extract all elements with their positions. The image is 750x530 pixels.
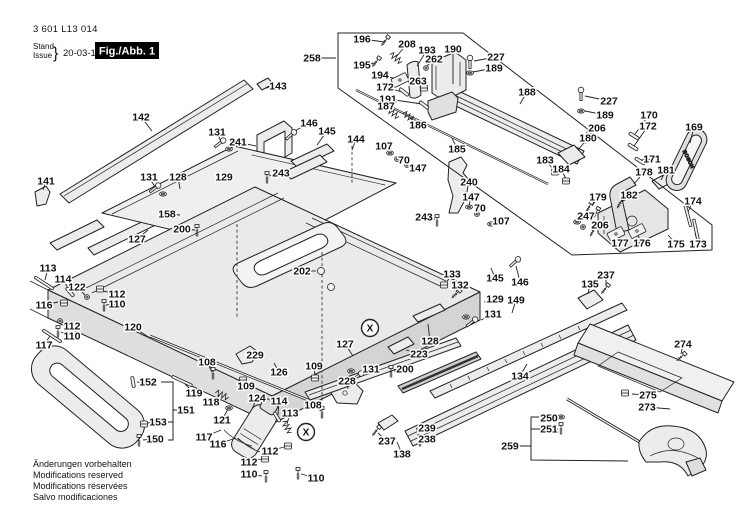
part-label-176: 176: [633, 238, 651, 250]
part-label-113: 113: [282, 408, 299, 420]
part-label-208: 208: [398, 39, 416, 51]
part-label-132: 132: [451, 280, 469, 292]
part-label-112: 112: [241, 457, 258, 469]
part-label-108: 108: [198, 357, 216, 369]
clip-141: [35, 186, 50, 206]
washer-icon: [467, 71, 474, 75]
part-label-262: 262: [425, 54, 443, 66]
part-label-194: 194: [371, 70, 389, 82]
part-label-143: 143: [269, 81, 287, 93]
part-label-180: 180: [579, 133, 597, 145]
part-label-110: 110: [241, 469, 258, 481]
spring-icon: [281, 419, 294, 434]
part-label-116: 116: [210, 439, 227, 451]
pin-icon: [628, 143, 639, 151]
part-label-145: 145: [318, 126, 336, 138]
issue-label: Issue: [33, 51, 53, 60]
part-label-70: 70: [398, 155, 410, 167]
part-label-274: 274: [674, 339, 692, 351]
part-label-151: 151: [177, 405, 195, 417]
part-label-114: 114: [271, 396, 288, 408]
part-label-273: 273: [638, 402, 656, 414]
part-label-109: 109: [305, 361, 323, 373]
part-label-131: 131: [140, 172, 158, 184]
carrier-191: [428, 92, 458, 120]
pin-icon: [131, 376, 136, 387]
part-label-169: 169: [685, 122, 703, 134]
figure-label: Fig./Abb. 1: [99, 46, 155, 58]
part-label-240: 240: [460, 177, 478, 189]
washer-icon: [558, 415, 565, 419]
screw-icon: [296, 468, 300, 481]
screw-icon: [195, 225, 199, 238]
bolt-icon: [508, 255, 522, 268]
clip-icon: [312, 375, 319, 381]
part-label-128: 128: [421, 336, 439, 348]
part-label-70: 70: [474, 203, 486, 215]
part-label-107: 107: [375, 141, 393, 153]
screw-icon: [559, 423, 563, 436]
nut-icon: [581, 225, 586, 230]
part-label-188: 188: [518, 87, 536, 99]
footer-line-de: Änderungen vorbehalten: [33, 459, 132, 469]
x-marker: X: [362, 320, 379, 337]
washer-icon: [226, 406, 233, 410]
footer-line-en: Modifications reserved: [33, 470, 123, 480]
part-label-152: 152: [139, 377, 157, 389]
pin-icon: [629, 132, 640, 140]
washer-icon: [348, 369, 355, 373]
part-label-128: 128: [169, 172, 187, 184]
parts-diagram-figure: 3 601 L13 014 Stand Issue } 20-03-10 Fig…: [0, 0, 750, 530]
svg-text:X: X: [367, 324, 374, 335]
circ-icon: [318, 268, 325, 275]
bracket-line: [161, 382, 173, 440]
clip-icon: [97, 286, 104, 292]
part-label-189: 189: [596, 110, 614, 122]
washer-icon: [466, 205, 473, 209]
part-label-173: 173: [689, 239, 707, 251]
part-label-172: 172: [376, 82, 394, 94]
part-label-110: 110: [109, 299, 126, 311]
part-label-146: 146: [511, 277, 529, 289]
part-label-237: 237: [378, 436, 396, 448]
part-label-241: 241: [229, 137, 247, 149]
part-label-144: 144: [347, 134, 365, 146]
part-label-146: 146: [300, 118, 318, 130]
svg-text:X: X: [303, 428, 310, 439]
part-label-108: 108: [304, 400, 322, 412]
parts-diagram-page: 3 601 L13 014 Stand Issue } 20-03-10 Fig…: [0, 0, 750, 530]
bolt-icon: [467, 55, 473, 68]
part-label-200: 200: [173, 224, 191, 236]
part-label-184: 184: [552, 164, 570, 176]
part-label-107: 107: [492, 216, 510, 228]
part-label-131: 131: [484, 309, 502, 321]
part-label-179: 179: [589, 192, 607, 204]
part-label-110: 110: [64, 331, 81, 343]
part-label-186: 186: [409, 120, 427, 132]
screw-icon: [389, 366, 393, 379]
screw-icon: [435, 215, 439, 228]
screw-icon: [264, 471, 268, 484]
nut-icon: [424, 66, 429, 71]
part-label-178: 178: [635, 167, 653, 179]
part-label-138: 138: [393, 449, 411, 461]
screw-icon: [371, 56, 382, 68]
part-label-200: 200: [396, 364, 414, 376]
screw-icon: [600, 283, 611, 295]
part-label-187: 187: [377, 101, 395, 113]
screw-icon: [56, 326, 60, 339]
footer-line-fr: Modifications réservées: [33, 481, 128, 491]
bolt-icon: [578, 87, 584, 100]
part-label-120: 120: [124, 322, 142, 334]
part-label-124: 124: [248, 393, 266, 405]
part-label-228: 228: [338, 376, 356, 388]
part-label-251: 251: [540, 424, 558, 436]
clip-icon: [285, 443, 292, 449]
clip-icon: [622, 390, 629, 396]
clip-icon: [563, 178, 570, 184]
footer-line-es: Salvo modificaciones: [33, 492, 118, 502]
part-label-149: 149: [507, 295, 525, 307]
part-label-116: 116: [36, 300, 53, 312]
part-label-147: 147: [409, 163, 427, 175]
header: 3 601 L13 014 Stand Issue } 20-03-10 Fig…: [33, 24, 159, 62]
part-label-153: 153: [149, 417, 167, 429]
part-label-127: 127: [128, 234, 146, 246]
part-label-185: 185: [448, 144, 466, 156]
part-label-121: 121: [213, 415, 231, 427]
part-label-182: 182: [620, 190, 638, 202]
part-label-177: 177: [611, 238, 629, 250]
part-label-195: 195: [353, 60, 371, 72]
part-label-142: 142: [132, 112, 150, 124]
part-label-109: 109: [237, 381, 255, 393]
part-label-189: 189: [485, 63, 503, 75]
x-marker: X: [298, 424, 315, 441]
clip-icon: [141, 421, 148, 427]
part-label-110: 110: [308, 473, 325, 485]
part-label-227: 227: [600, 96, 618, 108]
exploded-view-art: BOSCH: [23, 52, 734, 476]
part-label-181: 181: [657, 165, 675, 177]
part-label-122: 122: [68, 282, 86, 294]
part-label-172: 172: [639, 121, 657, 133]
pin-icon: [399, 87, 410, 96]
washer-icon: [578, 109, 585, 113]
part-label-243: 243: [272, 168, 290, 180]
part-label-206: 206: [591, 220, 609, 232]
screw-icon: [137, 435, 141, 448]
screw-icon: [265, 172, 269, 185]
part-label-237: 237: [597, 270, 615, 282]
part-label-127: 127: [336, 339, 354, 351]
washer-icon: [160, 192, 167, 196]
part-label-196: 196: [353, 34, 371, 46]
part-label-258: 258: [303, 53, 321, 65]
part-label-131: 131: [362, 364, 380, 376]
part-label-275: 275: [639, 390, 657, 402]
part-label-118: 118: [203, 397, 220, 409]
circ-icon: [328, 284, 335, 291]
part-label-134: 134: [511, 371, 529, 383]
part-label-141: 141: [37, 176, 55, 188]
part-label-229: 229: [246, 350, 264, 362]
part-label-129: 129: [215, 172, 233, 184]
part-label-238: 238: [418, 434, 436, 446]
part-label-129: 129: [486, 294, 504, 306]
clip-icon: [441, 282, 448, 288]
screw-icon: [380, 35, 391, 47]
footer: Änderungen vorbehalten Modifications res…: [33, 459, 132, 502]
plate-135: [578, 290, 603, 309]
part-label-243: 243: [415, 212, 433, 224]
document-part-number: 3 601 L13 014: [33, 24, 98, 35]
part-label-190: 190: [444, 44, 462, 56]
part-label-158: 158: [158, 209, 176, 221]
part-label-126: 126: [270, 367, 288, 379]
part-label-112: 112: [262, 446, 279, 458]
nut-icon: [85, 295, 90, 300]
part-label-259: 259: [501, 441, 519, 453]
brace: }: [53, 45, 59, 62]
part-label-119: 119: [186, 388, 203, 400]
washer-icon: [463, 315, 470, 319]
part-label-145: 145: [486, 273, 504, 285]
nut-icon: [58, 319, 63, 324]
part-label-117: 117: [36, 340, 53, 352]
part-label-131: 131: [208, 127, 226, 139]
part-label-174: 174: [684, 196, 702, 208]
part-label-263: 263: [409, 76, 427, 88]
screw-icon: [211, 368, 215, 381]
stand-label: Stand: [33, 42, 54, 51]
part-label-202: 202: [293, 266, 311, 278]
part-label-150: 150: [146, 434, 164, 446]
spring-icon: [389, 51, 404, 64]
clip-icon: [61, 300, 68, 306]
part-label-223: 223: [410, 349, 428, 361]
part-label-175: 175: [667, 239, 685, 251]
